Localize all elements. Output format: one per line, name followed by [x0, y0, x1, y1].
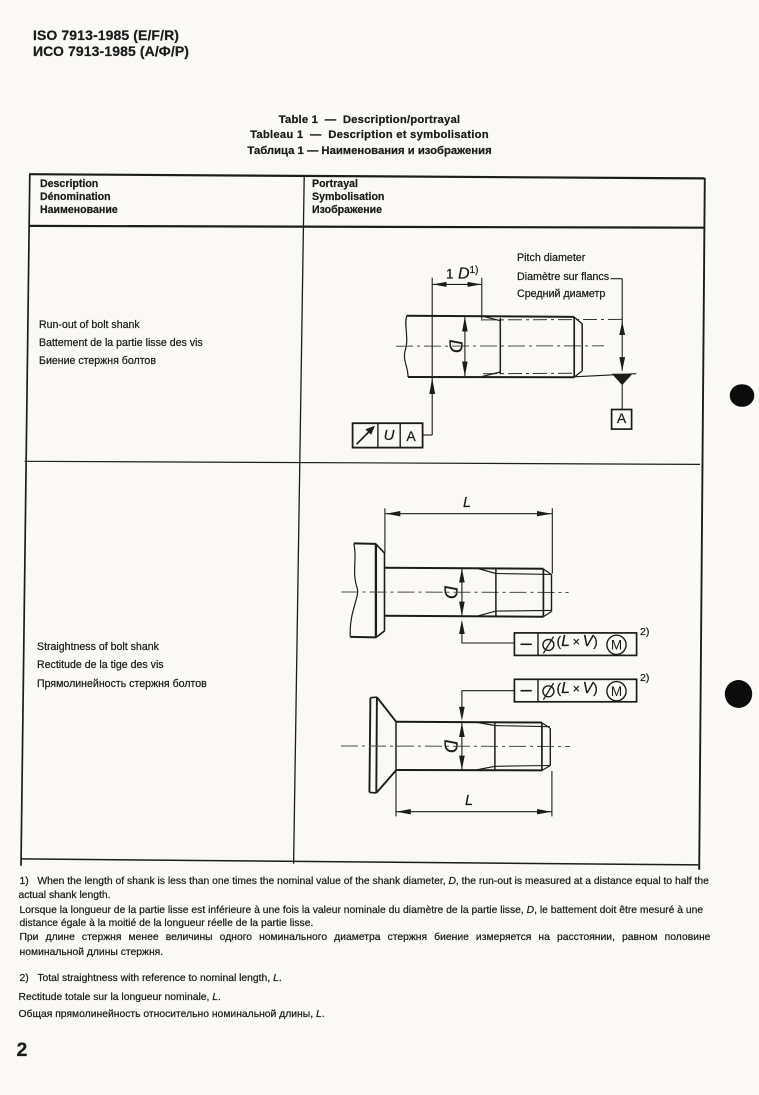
svg-text:M: M	[611, 684, 622, 699]
svg-text:M: M	[611, 638, 622, 653]
